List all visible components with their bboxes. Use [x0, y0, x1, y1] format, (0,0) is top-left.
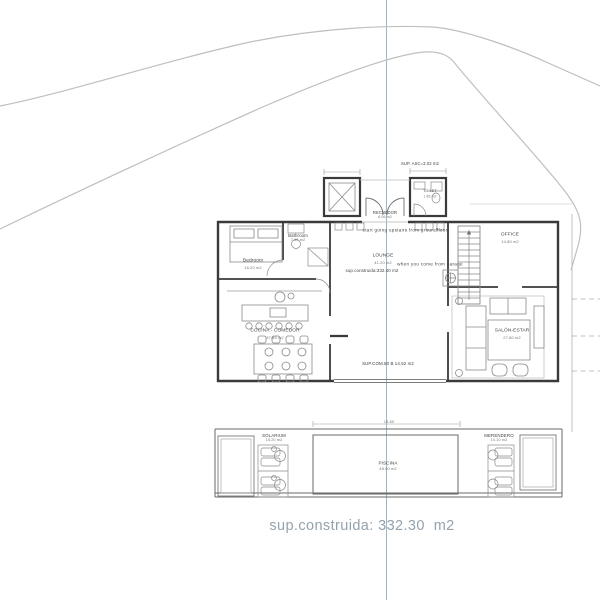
note-garage: when you come from garage: [397, 263, 463, 268]
sup-construida-inner: sup.construida:332.40 m2: [346, 269, 399, 273]
salon-area: 27.80 m2: [503, 336, 520, 340]
note-upstairs: start going upstairs from groundfloor: [363, 229, 448, 234]
garage-spiral-stair: [443, 270, 458, 286]
sup-asc-label: SUP. ASC=3.02 m2: [401, 162, 439, 166]
bathroom-fixtures: [288, 224, 328, 266]
solarium-area: 15.20 m2: [266, 439, 283, 443]
lounge-area: 41.20 m2: [374, 261, 391, 265]
bedroom-area: 16.20 m2: [244, 266, 261, 270]
floorplan-canvas: SUP. ASC=3.02 m2 TOILET 1.85 m2 RECIBIDO…: [0, 0, 600, 600]
bathroom-area: 7.65 m2: [291, 239, 305, 243]
site-road-outer: [0, 26, 600, 106]
kitchen-furniture: [242, 292, 308, 329]
toilet-area: 1.85 m2: [424, 195, 437, 198]
living-furniture: [452, 296, 544, 378]
office-area: 14.80 m2: [501, 240, 518, 244]
piscina-area: 48.00 m2: [379, 467, 396, 471]
dining-furniture: [254, 336, 312, 382]
recibidor-area: 8.06 m2: [378, 216, 392, 220]
merendero-area: 14.10 m2: [491, 439, 508, 443]
dimension-lines: [324, 168, 446, 175]
deck-dimension: 13.60: [384, 420, 395, 424]
sup-com-label: SUP.COM.50 B 14.52 m2: [362, 362, 414, 366]
cocina-area: 37.85 m2: [266, 336, 283, 340]
interior-walls: [218, 222, 558, 381]
total-built-area-text: sup.construida: 332.30 m2: [269, 518, 454, 534]
bedroom-furniture: [230, 226, 282, 262]
plan-linework: [0, 0, 600, 600]
plot-boundary: [470, 204, 600, 432]
elevator-shaft: [324, 178, 360, 216]
